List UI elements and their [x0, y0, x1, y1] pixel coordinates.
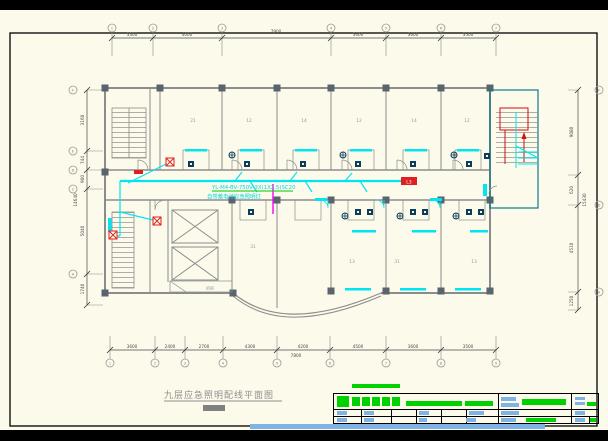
drawing-title: 九层应急照明配线平面图: [164, 389, 274, 401]
svg-text:3160: 3160: [80, 114, 85, 125]
svg-text:3: 3: [184, 362, 186, 366]
svg-text:31: 31: [250, 244, 256, 250]
grid-label: 1: [111, 27, 113, 31]
redacted-blue-text: [469, 411, 484, 415]
svg-text:4300: 4300: [245, 344, 256, 349]
svg-text:12: 12: [464, 118, 470, 124]
redacted-blue-text: [419, 418, 427, 422]
svg-text:1740: 1740: [80, 283, 85, 294]
redacted-blue-text: [501, 403, 519, 407]
titleblock-cell-divider: [441, 409, 442, 423]
svg-text:14: 14: [301, 118, 307, 124]
bottom-blue-underline: [250, 424, 545, 429]
svg-text:2400: 2400: [165, 344, 176, 349]
logo-text-glyph: [362, 397, 370, 406]
svg-text:21: 21: [190, 118, 196, 124]
logo-text-glyph: [352, 397, 360, 406]
company-logo: [337, 396, 349, 407]
grid-label: 5: [385, 27, 387, 31]
redacted-green-text: [406, 401, 462, 406]
svg-text:2700: 2700: [199, 344, 210, 349]
grid-label: 4: [330, 27, 332, 31]
redacted-blue-text: [337, 418, 347, 422]
titleblock-top-green-bar: [352, 384, 400, 388]
titleblock-col-divider: [571, 394, 572, 423]
svg-text:5040: 5040: [80, 225, 85, 236]
svg-text:4510: 4510: [569, 242, 574, 253]
svg-text:7: 7: [385, 362, 387, 366]
redacted-blue-text: [575, 411, 585, 415]
redacted-blue-text: [364, 411, 374, 415]
logo-text-glyph: [392, 397, 400, 406]
svg-text:4200: 4200: [298, 344, 309, 349]
titleblock-col-divider: [498, 394, 499, 423]
svg-text:7800: 7800: [291, 353, 302, 358]
svg-text:3600: 3600: [353, 32, 364, 37]
svg-text:9: 9: [495, 362, 497, 366]
grid-label: 3: [221, 27, 223, 31]
svg-text:12: 12: [246, 118, 252, 124]
titleblock-table: [333, 393, 599, 424]
svg-text:4500: 4500: [353, 344, 364, 349]
redacted-blue-text: [575, 418, 585, 422]
svg-text:9080: 9080: [569, 126, 574, 137]
svg-text:15430: 15430: [582, 193, 587, 207]
svg-text:5: 5: [276, 362, 278, 366]
grid-label: 6: [440, 27, 442, 31]
svg-text:13: 13: [349, 259, 355, 265]
logo-text-glyph: [372, 397, 380, 406]
cad-drawing-screenshot: { "colors": { "paper": "#FCFAEA", "wall_…: [0, 0, 608, 441]
svg-text:E: E: [72, 150, 74, 154]
svg-text:4000: 4000: [182, 32, 193, 37]
redacted-blue-text: [337, 411, 347, 415]
feeder-box-label: L3: [406, 180, 412, 186]
svg-text:2: 2: [154, 362, 156, 366]
svg-text:6: 6: [329, 362, 331, 366]
svg-text:3500: 3500: [463, 32, 474, 37]
floor-plan-canvas: 1 2 3 4 5 6 7 3300 4000 7900 3600 3600 3…: [0, 0, 608, 441]
svg-text:14640: 14640: [73, 193, 78, 207]
svg-text:14: 14: [411, 118, 417, 124]
redacted-blue-text: [575, 397, 585, 400]
svg-text:744: 744: [80, 156, 85, 164]
redacted-green-text: [465, 401, 493, 406]
wire-spec-annotation: YL-M4-BV-750V-3X(1X2.5)SC20: [211, 185, 296, 191]
redacted-blue-text: [501, 411, 519, 415]
svg-text:3600: 3600: [408, 32, 419, 37]
machine-room-label: 机房: [206, 285, 214, 291]
svg-text:3600: 3600: [408, 344, 419, 349]
svg-text:D: D: [72, 169, 75, 173]
titleblock-cell-divider: [361, 409, 362, 423]
svg-text:12: 12: [356, 118, 362, 124]
svg-text:3600: 3600: [127, 344, 138, 349]
svg-text:3500: 3500: [463, 344, 474, 349]
title-scale-block: [203, 405, 225, 411]
feeder-junction-box: L3: [401, 177, 417, 186]
svg-text:F: F: [598, 89, 600, 93]
svg-text:3300: 3300: [127, 32, 138, 37]
grid-label: 2: [152, 27, 154, 31]
redacted-blue-text: [501, 418, 516, 422]
redacted-green-text: [590, 418, 596, 422]
svg-text:13: 13: [471, 259, 477, 265]
redacted-blue-text: [466, 418, 476, 422]
svg-text:31: 31: [394, 259, 400, 265]
redacted-green-text: [522, 399, 566, 405]
titleblock-cell-divider: [416, 409, 417, 423]
titleblock-cell-divider: [391, 409, 392, 423]
svg-text:900: 900: [80, 175, 85, 183]
redacted-blue-text: [364, 418, 374, 422]
svg-text:620: 620: [569, 186, 574, 194]
redacted-blue-text: [501, 397, 516, 401]
stair-top-left: [112, 108, 146, 158]
svg-text:1250: 1250: [569, 295, 574, 306]
svg-text:8: 8: [440, 362, 442, 366]
stair-core-left: [112, 212, 134, 288]
svg-text:7900: 7900: [271, 29, 282, 34]
grid-label: 7: [495, 27, 497, 31]
wire-note-annotation: 自带蓄电池应急照明灯: [207, 193, 262, 201]
redacted-green-text: [587, 402, 596, 406]
svg-text:1: 1: [109, 362, 111, 366]
redacted-blue-text: [575, 402, 585, 405]
svg-text:D: D: [598, 204, 601, 208]
redacted-green-text: [526, 418, 556, 422]
svg-text:F: F: [72, 89, 74, 93]
logo-text-glyph: [382, 397, 390, 406]
redacted-blue-text: [419, 411, 429, 415]
svg-text:4: 4: [222, 362, 224, 366]
